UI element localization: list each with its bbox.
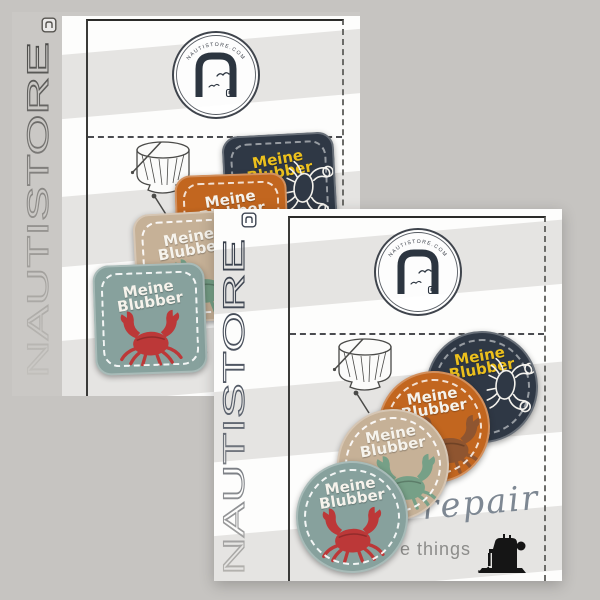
- nautistore-logo-stamp: [372, 226, 464, 318]
- nautistore-logo-stamp: [170, 29, 262, 121]
- card-content: repair e things MeineBlubber MeineBlubbe…: [214, 209, 562, 581]
- crab-icon: [315, 504, 391, 565]
- product-card-round-patches: NAUTISTORE repair e things MeineBlubber …: [214, 209, 562, 581]
- sewing-machine-icon: [476, 529, 528, 575]
- caption-text: e things: [400, 539, 471, 560]
- patch-teal-square: MeineBlubber: [92, 262, 208, 376]
- crab-outline-icon: [479, 351, 540, 419]
- product-photo-canvas: { "page": { "background_color": "#c6c4c1…: [0, 0, 600, 600]
- crab-icon: [113, 307, 189, 368]
- patch-teal-round: MeineBlubber: [294, 459, 410, 575]
